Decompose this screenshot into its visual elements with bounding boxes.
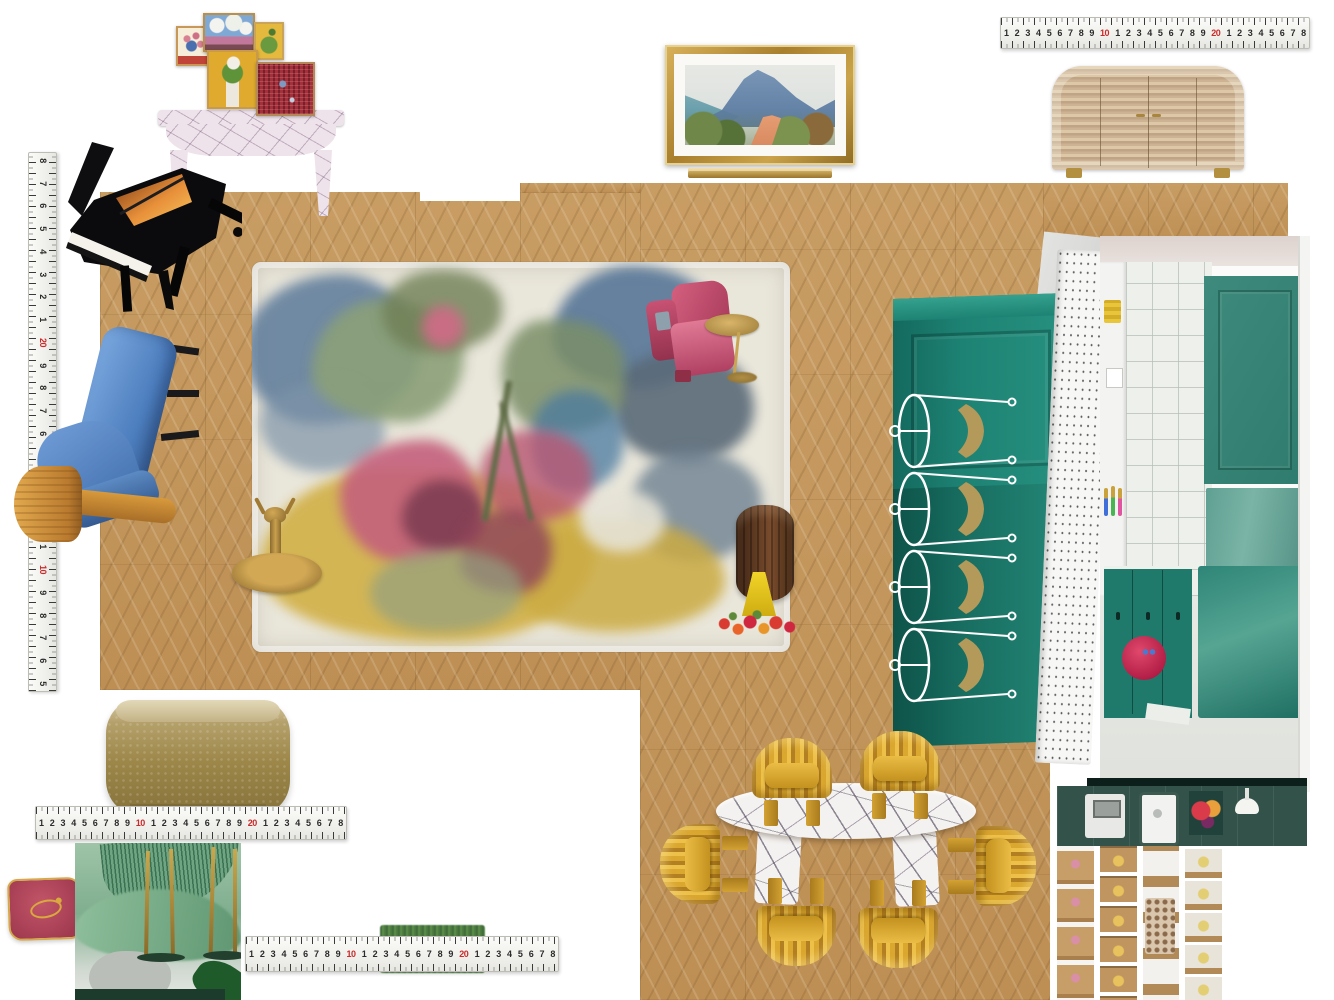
drawer-handle-1 <box>1116 612 1120 620</box>
plan-appliance <box>1085 794 1125 838</box>
ruler-number: 3 <box>1025 29 1030 38</box>
ruler-number: 6 <box>529 950 534 959</box>
painting-mat <box>674 54 846 156</box>
dining-chair-cushion <box>871 918 925 943</box>
tray-top <box>232 553 322 593</box>
ruler-bottom-numbers: 123456789101234567892012345678 <box>249 943 555 965</box>
ruler-number: 3 <box>285 819 290 828</box>
art-frame-pear[interactable] <box>254 22 284 60</box>
dining-chair-cushion <box>986 839 1011 893</box>
dining-chair-leg <box>768 878 782 904</box>
sideboard-handle-left <box>1136 114 1145 117</box>
art-apple-column-content <box>209 52 256 107</box>
sideboard-door-seam-1 <box>1100 78 1101 166</box>
ruler-number: 10 <box>136 819 145 828</box>
ruler-number: 8 <box>1301 29 1306 38</box>
dining-chair-leg <box>870 880 884 906</box>
kitchen-utensil-pink <box>1118 488 1122 516</box>
ruler-number: 6 <box>38 658 47 663</box>
pole-base-plate <box>137 953 185 962</box>
ruler-number: 7 <box>216 819 221 828</box>
dining-chair-leg <box>912 880 926 906</box>
ruler-number: 2 <box>1015 29 1020 38</box>
martini-table-base <box>727 372 757 383</box>
art-pear-content <box>256 24 282 58</box>
ruler-number: 9 <box>125 819 130 828</box>
chair-leg-2 <box>167 390 199 397</box>
coffee-table-top-face <box>116 700 280 722</box>
ruler-number: 4 <box>507 950 512 959</box>
ruler-number: 10 <box>38 565 47 574</box>
dining-chair-leg <box>764 800 778 826</box>
ruler-number: 7 <box>328 819 333 828</box>
kitchen-photo-right-section[interactable] <box>1100 236 1310 792</box>
sofa-green-photo[interactable] <box>75 843 241 1000</box>
ruler-number: 9 <box>336 950 341 959</box>
dining-chair-left[interactable] <box>660 824 748 904</box>
kitchen-utensil-green <box>1111 486 1115 516</box>
stool-stem <box>69 489 177 525</box>
ruler-number: 10 <box>346 950 355 959</box>
ruler-number: 6 <box>1280 29 1285 38</box>
ruler-number: 8 <box>550 950 555 959</box>
armchair-base <box>675 370 691 382</box>
ruler-number: 4 <box>394 950 399 959</box>
ruler-number: 3 <box>271 950 276 959</box>
ruler-number: 2 <box>50 819 55 828</box>
drawer-seam-2 <box>1162 570 1163 714</box>
kitchen-door-frame <box>1298 236 1310 792</box>
ruler-number: 8 <box>338 819 343 828</box>
mushroom-stool-wood[interactable] <box>14 460 179 552</box>
sideboard-foot-left <box>1066 168 1082 178</box>
ruler-number: 5 <box>82 819 87 828</box>
chair-leg-3 <box>161 430 200 441</box>
ruler-number: 8 <box>226 819 231 828</box>
ruler-number: 6 <box>93 819 98 828</box>
ruler-number: 5 <box>38 681 47 686</box>
ruler-number: 8 <box>38 613 47 618</box>
sofa-velvet-wave <box>75 889 241 961</box>
ruler-number: 7 <box>540 950 545 959</box>
sideboard-ribbed-wood[interactable] <box>1052 66 1244 178</box>
tray-finial-right <box>284 497 296 515</box>
ruler-number: 3 <box>496 950 501 959</box>
plan-art-tile <box>1189 791 1223 835</box>
ruler-number: 1 <box>249 950 254 959</box>
ruler-number: 1 <box>263 819 268 828</box>
art-frame-red-abstract[interactable] <box>256 62 315 116</box>
sideboard-door-seam-2 <box>1148 76 1149 168</box>
dining-chair-top-left[interactable] <box>752 738 832 826</box>
pole-base-plate-2 <box>203 951 241 960</box>
ruler-mid-left-numbers: 123456789101234567892012345678 <box>39 813 343 833</box>
ruler-number: 4 <box>71 819 76 828</box>
floor-notch <box>420 192 520 201</box>
plan-col-wood-yellow <box>1100 846 1137 1000</box>
art-frame-landscape-clouds[interactable] <box>203 13 255 52</box>
sideboard-foot-right <box>1214 168 1230 178</box>
kitchen-yellow-box <box>1104 300 1121 323</box>
plan-appliance-screen <box>1093 800 1121 818</box>
art-clouds-content <box>205 15 253 50</box>
plan-sconce-stem <box>1245 788 1249 800</box>
ruler-number: 5 <box>292 950 297 959</box>
dining-chair-leg <box>810 878 824 904</box>
ruler-number: 5 <box>1047 29 1052 38</box>
ruler-number: 7 <box>104 819 109 828</box>
ruler-number: 8 <box>1079 29 1084 38</box>
ruler-number: 9 <box>237 819 242 828</box>
dining-chair-cushion <box>765 763 819 788</box>
ruler-number: 5 <box>38 226 47 231</box>
ruler-number: 10 <box>1100 29 1109 38</box>
ruler-number: 5 <box>1158 29 1163 38</box>
wire-stool-2[interactable] <box>888 470 1038 548</box>
console-leg-right <box>314 150 332 216</box>
rug-blob-sage-bottom <box>370 550 522 632</box>
ruler-number: 4 <box>281 950 286 959</box>
kitchen-red-bowl <box>1122 636 1166 680</box>
ruler-number: 8 <box>325 950 330 959</box>
ruler-number: 8 <box>438 950 443 959</box>
kitchen-upper-cabinet-teal <box>1204 276 1306 484</box>
ruler-number: 8 <box>1190 29 1195 38</box>
ruler-number: 4 <box>183 819 188 828</box>
ruler-number: 7 <box>314 950 319 959</box>
dining-chair-leg <box>722 836 748 850</box>
painting-landscape-gold-frame[interactable] <box>665 45 855 165</box>
ruler-number: 6 <box>1169 29 1174 38</box>
ruler-number: 1 <box>39 819 44 828</box>
ruler-number: 2 <box>162 819 167 828</box>
dining-chair-leg <box>948 838 974 852</box>
sideboard-handle-right <box>1152 114 1161 117</box>
plan-sconce <box>1235 798 1259 814</box>
sofa-photo-bottom-strip <box>75 989 225 1000</box>
ruler-number: 9 <box>38 590 47 595</box>
ruler-number: 4 <box>1036 29 1041 38</box>
plan-col-cups-yellow <box>1185 846 1222 1000</box>
ruler-number: 2 <box>274 819 279 828</box>
thin-gold-frame-edge[interactable] <box>688 168 832 178</box>
dining-chair-right[interactable] <box>948 826 1036 906</box>
drawer-handle-3 <box>1176 612 1180 620</box>
ruler-number: 1 <box>475 950 480 959</box>
ruler-number: 1 <box>151 819 156 828</box>
kitchen-white-box <box>1106 368 1123 388</box>
dining-chair-bottom-left[interactable] <box>756 878 836 966</box>
ruler-top-right-numbers: 123456789101234567892012345678 <box>1004 24 1306 42</box>
dining-chair-leg <box>872 793 886 819</box>
kitchen-plan-photo[interactable] <box>1057 778 1307 1000</box>
kitchen-utensil-blue <box>1104 488 1108 516</box>
ruler-number: 7 <box>38 636 47 641</box>
wire-stool-3[interactable] <box>888 548 1038 626</box>
bowl-spoon-specks <box>1142 648 1156 656</box>
ruler-number: 4 <box>1258 29 1263 38</box>
ruler-number: 9 <box>1201 29 1206 38</box>
ruler-number: 1 <box>1226 29 1231 38</box>
coffee-table-brass-cube[interactable] <box>106 700 290 814</box>
flower-cluster <box>714 604 800 640</box>
ruler-number: 1 <box>1115 29 1120 38</box>
ruler-number: 20 <box>459 950 468 959</box>
ruler-number: 3 <box>1137 29 1142 38</box>
ruler-number: 2 <box>38 295 47 300</box>
stool-cap <box>14 466 82 542</box>
wire-stool-1[interactable] <box>888 392 1038 470</box>
cabinet-inner-frame <box>1218 290 1292 470</box>
ruler-number: 6 <box>1057 29 1062 38</box>
ruler-number: 1 <box>38 317 47 322</box>
painting-art <box>685 65 835 145</box>
ruler-number: 2 <box>260 950 265 959</box>
ruler-number: 2 <box>373 950 378 959</box>
ruler-number: 1 <box>362 950 367 959</box>
ruler-top-right[interactable]: 123456789101234567892012345678 <box>1000 17 1310 49</box>
rug-blob-cream <box>580 490 665 552</box>
ruler-number: 5 <box>1269 29 1274 38</box>
ruler-number: 3 <box>1248 29 1253 38</box>
ruler-number: 2 <box>1237 29 1242 38</box>
art-frame-apple-column[interactable] <box>207 50 258 109</box>
ruler-number: 5 <box>194 819 199 828</box>
ruler-number: 3 <box>383 950 388 959</box>
ruler-number: 7 <box>1068 29 1073 38</box>
ruler-number: 7 <box>1290 29 1295 38</box>
ruler-number: 1 <box>1004 29 1009 38</box>
ruler-number: 3 <box>173 819 178 828</box>
dining-chair-leg <box>914 793 928 819</box>
ruler-number: 2 <box>485 950 490 959</box>
floor-wood-strip <box>520 183 640 193</box>
ruler-number: 20 <box>1211 29 1220 38</box>
grand-piano[interactable] <box>62 140 242 320</box>
ruler-number: 3 <box>38 272 47 277</box>
plan-sink-drain <box>1153 809 1162 818</box>
dining-chair-bottom-right[interactable] <box>858 880 938 968</box>
tray-table-brass[interactable] <box>232 495 324 595</box>
plan-col-plates-pink <box>1228 846 1265 1000</box>
dining-chair-leg <box>806 800 820 826</box>
plan-col-chairs-pink <box>1057 846 1094 1000</box>
ruler-number: 7 <box>427 950 432 959</box>
armchair-arm-cutout <box>655 311 671 331</box>
art-red-abstract-texture <box>258 64 313 114</box>
ruler-mid-left[interactable]: 123456789101234567892012345678 <box>35 806 347 840</box>
moodboard-canvas: 87654321209876543211098765 1234567891012… <box>0 0 1334 1000</box>
dining-chair-cushion <box>873 756 927 781</box>
ruler-number: 6 <box>38 204 47 209</box>
ruler-number: 6 <box>416 950 421 959</box>
dining-chair-cushion <box>685 837 710 891</box>
ruler-number: 6 <box>303 950 308 959</box>
ruler-number: 9 <box>1089 29 1094 38</box>
ruler-number: 7 <box>1179 29 1184 38</box>
ruler-number: 9 <box>448 950 453 959</box>
wire-stool-4[interactable] <box>888 626 1038 704</box>
kitchen-wrapped-appliance <box>1198 566 1302 718</box>
dining-chair-top-right[interactable] <box>860 731 940 819</box>
dining-chair-leg <box>722 878 748 892</box>
plan-benchtop-strip <box>1057 786 1307 846</box>
ruler-number: 6 <box>205 819 210 828</box>
dining-chair-leg <box>948 880 974 894</box>
ruler-number: 2 <box>1126 29 1131 38</box>
ruler-number: 4 <box>38 249 47 254</box>
plan-wine-rack <box>1145 898 1175 954</box>
ruler-number: 6 <box>317 819 322 828</box>
ruler-number: 4 <box>1147 29 1152 38</box>
martini-table-top <box>705 314 759 336</box>
ruler-number: 3 <box>61 819 66 828</box>
ruler-number: 5 <box>518 950 523 959</box>
ruler-number: 8 <box>114 819 119 828</box>
island-top-edge <box>893 293 1065 321</box>
rug-blob-pink-small <box>422 306 464 348</box>
brass-pole-4 <box>233 849 237 955</box>
cushion-red-velvet[interactable] <box>7 877 83 942</box>
sideboard-door-seam-3 <box>1196 78 1197 166</box>
armchair-pink[interactable] <box>643 282 773 384</box>
ruler-number: 5 <box>306 819 311 828</box>
vase-yellow-flowers[interactable] <box>714 568 800 644</box>
ruler-number: 7 <box>38 181 47 186</box>
ruler-number: 5 <box>405 950 410 959</box>
ruler-number: 8 <box>38 158 47 163</box>
drawer-handle-2 <box>1146 612 1150 620</box>
plan-sink <box>1139 792 1179 846</box>
piano-caster <box>233 227 242 237</box>
ruler-bottom[interactable]: 123456789101234567892012345678 <box>245 936 559 972</box>
ruler-number: 20 <box>248 819 257 828</box>
ruler-number: 4 <box>295 819 300 828</box>
dining-chair-cushion <box>769 916 823 941</box>
